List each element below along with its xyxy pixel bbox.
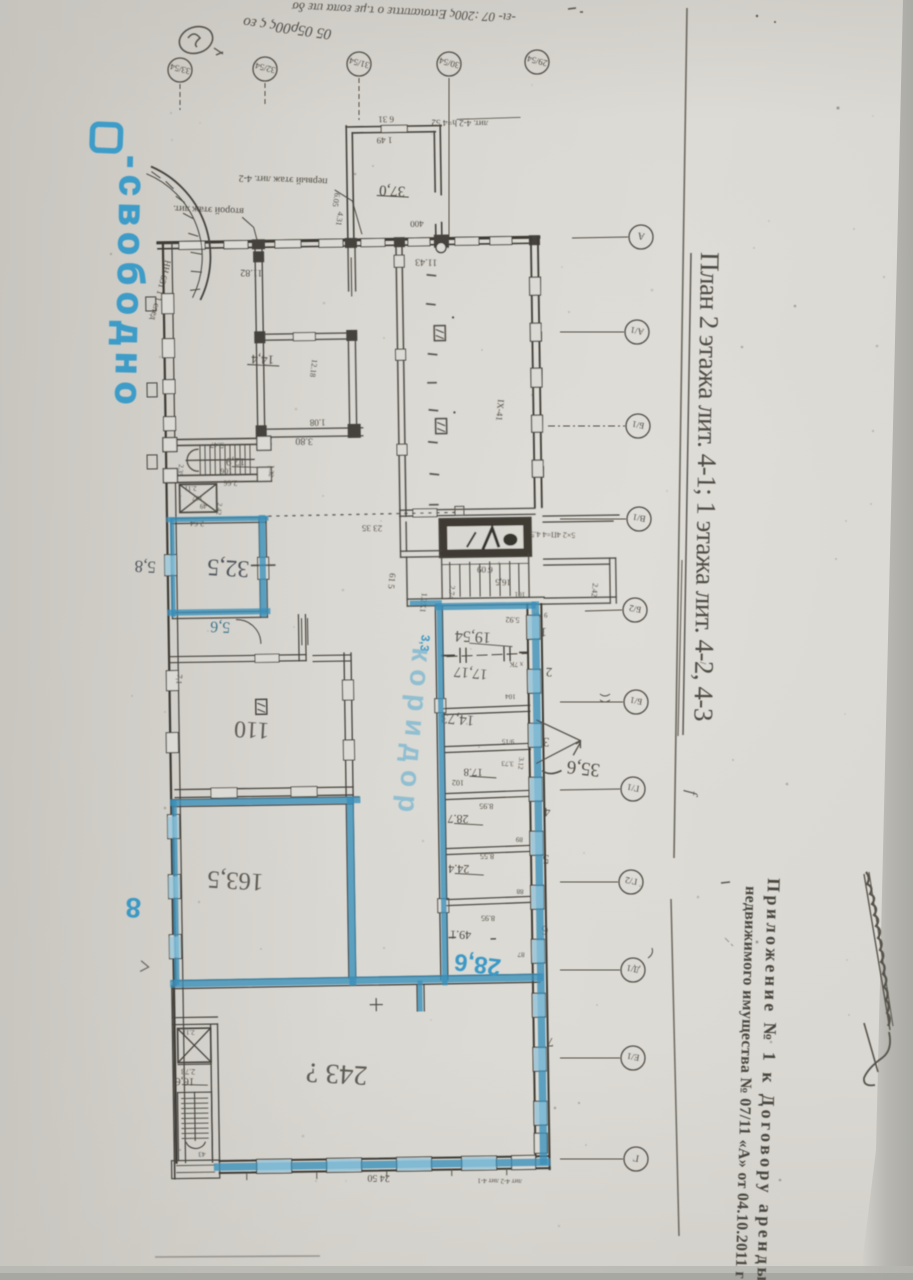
- svg-text:32,5: 32,5: [207, 553, 250, 581]
- svg-text:x 7K: x 7K: [509, 660, 523, 668]
- svg-text:5.92: 5.92: [505, 615, 519, 624]
- svg-text:Б/1: Б/1: [631, 419, 645, 431]
- svg-text:2.35: 2.35: [176, 464, 185, 477]
- svg-text:16,5: 16,5: [495, 577, 511, 587]
- svg-text:107: 107: [192, 494, 203, 502]
- svg-text:24 50: 24 50: [367, 1172, 390, 1183]
- svg-text:2.42: 2.42: [590, 583, 600, 598]
- svg-text:3.12: 3.12: [516, 757, 525, 770]
- svg-text:43: 43: [198, 1150, 206, 1158]
- svg-text:110: 110: [233, 715, 269, 743]
- svg-text:17,17: 17,17: [453, 663, 489, 682]
- svg-text:49.1: 49.1: [450, 928, 471, 942]
- svg-text:2.73: 2.73: [181, 1067, 195, 1076]
- svg-text:243 ?: 243 ?: [305, 1056, 368, 1090]
- svg-text:7,1: 7,1: [174, 674, 184, 685]
- svg-text:5.47: 5.47: [210, 441, 224, 450]
- svg-text:IX-41: IX-41: [494, 399, 506, 421]
- svg-text:5,6: 5,6: [210, 618, 231, 636]
- svg-text:11.82: 11.82: [240, 267, 262, 278]
- svg-text:14,73: 14,73: [440, 709, 475, 728]
- svg-text:163,5: 163,5: [207, 865, 265, 895]
- svg-text:8: 8: [125, 892, 142, 924]
- svg-text:102: 102: [452, 778, 464, 787]
- svg-text:2.74: 2.74: [447, 585, 457, 600]
- svg-text:12,9: 12,9: [225, 455, 245, 467]
- svg-text:101: 101: [514, 590, 525, 598]
- svg-text:1.08: 1.08: [309, 417, 325, 427]
- svg-text:5,8: 5,8: [134, 557, 156, 577]
- svg-text:104: 104: [505, 692, 516, 700]
- svg-text:2: 2: [546, 665, 553, 680]
- svg-text:5×2 4П=4 4.5: 5×2 4П=4 4.5: [530, 530, 575, 540]
- svg-text:6 31: 6 31: [378, 114, 394, 124]
- svg-text:87: 87: [517, 950, 525, 958]
- svg-text:3.80: 3.80: [295, 435, 313, 446]
- svg-text:Б/2: Б/2: [628, 603, 642, 615]
- svg-text:8.95: 8.95: [481, 914, 495, 923]
- svg-text:9/15: 9/15: [501, 737, 514, 745]
- svg-text:400: 400: [410, 219, 424, 229]
- svg-text:61 5: 61 5: [386, 573, 397, 590]
- svg-text:28,6: 28,6: [453, 948, 503, 981]
- svg-text:89: 89: [515, 835, 523, 843]
- svg-text:-свободно: -свободно: [107, 155, 153, 412]
- svg-text:16,6: 16,6: [175, 1075, 195, 1087]
- svg-text:2.42: 2.42: [214, 502, 223, 515]
- svg-text:23 35: 23 35: [361, 523, 382, 533]
- svg-text:1.32: 1.32: [267, 465, 276, 478]
- svg-text:Е/1: Е/1: [626, 1051, 640, 1063]
- svg-text:6 09: 6 09: [476, 565, 492, 575]
- svg-text:Г/1: Г/1: [626, 782, 640, 794]
- svg-text:1 49: 1 49: [376, 135, 392, 145]
- svg-text:11.43: 11.43: [415, 256, 437, 267]
- svg-text:2.66: 2.66: [223, 478, 237, 487]
- svg-text:88: 88: [516, 887, 524, 895]
- svg-text:2.11: 2.11: [182, 1028, 195, 1036]
- svg-text:8.55: 8.55: [480, 852, 494, 861]
- svg-text:35,6: 35,6: [566, 756, 601, 780]
- svg-text:8.95: 8.95: [479, 802, 493, 811]
- svg-text:Б/1: Б/1: [629, 695, 643, 707]
- svg-text:Г/2: Г/2: [624, 875, 638, 887]
- svg-text:лит 4-2 лит 4-1: лит 4-2 лит 4-1: [477, 1177, 522, 1186]
- svg-text:49: 49: [199, 502, 207, 510]
- svg-text:106: 106: [220, 466, 232, 475]
- svg-text:2.11: 2.11: [184, 484, 197, 492]
- svg-text:3.73: 3.73: [501, 759, 514, 767]
